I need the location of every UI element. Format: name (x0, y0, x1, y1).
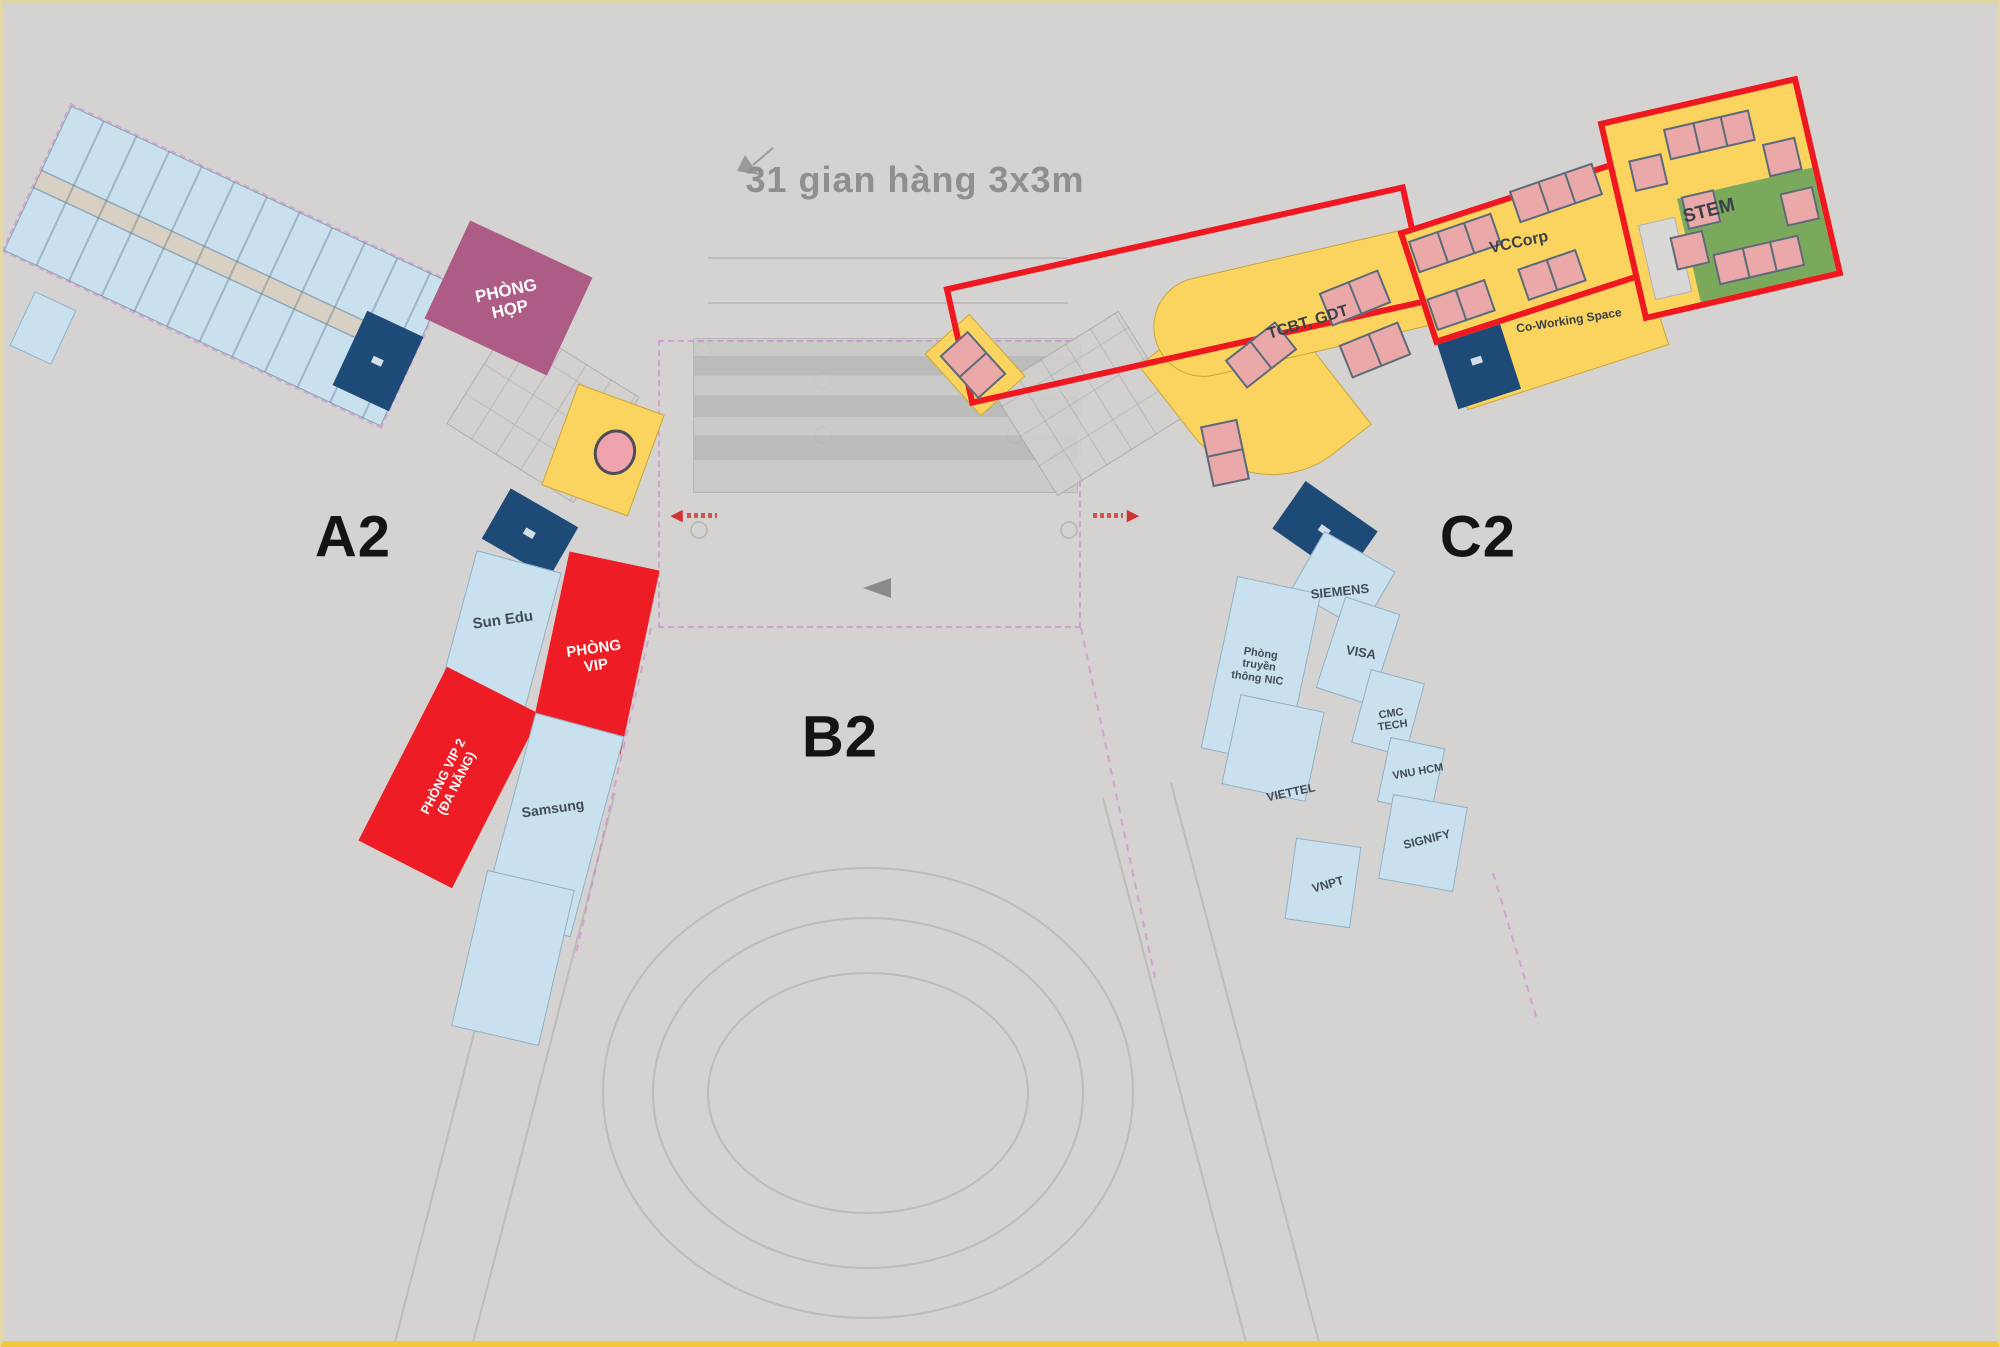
zone-label-b2: B2 (802, 706, 878, 771)
nic-label: Phòng truyền thông NIC (1230, 644, 1287, 688)
plan-title: 31 gian hàng 3x3m (745, 160, 1084, 200)
left-arrow-icon: ◀ (671, 506, 683, 524)
cmc-tech-label: CMC TECH (1375, 706, 1408, 735)
zone-label-a2: A2 (315, 506, 391, 571)
right-arrow-icon: ▶ (1127, 506, 1139, 524)
red-dash-annotation (1093, 513, 1123, 518)
round-stage-icon (588, 423, 643, 481)
zone-label-c2: C2 (1440, 506, 1516, 571)
booth (1628, 153, 1668, 192)
booth (1663, 109, 1756, 160)
entry-marker-left: ◀ (671, 506, 717, 524)
entry-marker-right: ▶ (1093, 506, 1139, 524)
red-dash-annotation (687, 513, 717, 518)
floor-plan-canvas: ◀ ▶ (0, 0, 2000, 1347)
